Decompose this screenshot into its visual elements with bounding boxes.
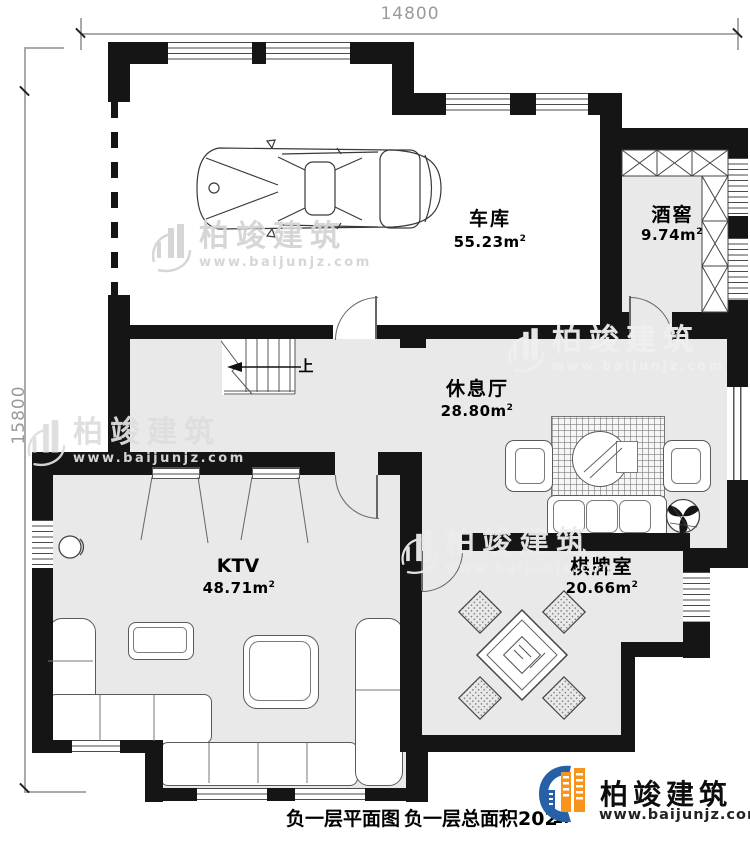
- wall-segment: [108, 325, 333, 339]
- wall-segment: [462, 533, 690, 551]
- window: [446, 93, 510, 115]
- projector-screen: [152, 467, 200, 479]
- wall-segment: [621, 642, 635, 742]
- wall-segment: [365, 788, 428, 801]
- top-dimension-line: [80, 33, 737, 35]
- wall-segment: [267, 788, 295, 801]
- floor-plan: 14800 15800: [0, 0, 750, 845]
- wall-segment: [400, 452, 422, 752]
- watermark: 柏竣建筑www.baijunjz.com: [148, 222, 372, 274]
- left-dimension-line: [24, 47, 26, 792]
- wall-segment: [377, 325, 602, 339]
- wall-pier: [400, 339, 426, 348]
- dimension-extension: [24, 47, 64, 49]
- wall-segment: [108, 295, 130, 455]
- ktv-sofa-right-arm: [355, 618, 403, 786]
- ktv-table-top: [133, 627, 187, 653]
- left-dimension-label: 15800: [9, 360, 29, 470]
- sofa-seat: [553, 500, 585, 533]
- window: [197, 788, 267, 801]
- room-label-ktv: KTV: [198, 556, 278, 577]
- stairs-up-label: 上: [296, 358, 316, 375]
- top-dimension-label: 14800: [340, 4, 480, 24]
- room-area-chess: 20.66m2: [563, 580, 641, 597]
- room-area-lounge: 28.80m2: [428, 403, 526, 420]
- armchair-cushion: [671, 448, 701, 484]
- brand-url: www.baijunjz.com: [599, 807, 750, 823]
- room-area-cellar: 9.74m2: [628, 227, 716, 244]
- chess-room-floor: [422, 643, 635, 736]
- wall-segment: [145, 740, 163, 802]
- armchair-cushion: [515, 448, 545, 484]
- window: [727, 238, 748, 300]
- chess-room-floor: [422, 551, 683, 643]
- plan-title: 负一层平面图: [286, 804, 400, 831]
- room-label-chess: 棋牌室: [564, 557, 640, 578]
- window: [727, 387, 748, 480]
- doorway-floor: [422, 533, 462, 551]
- wall-segment: [32, 452, 53, 753]
- sofa-seat: [586, 500, 618, 533]
- window: [727, 158, 748, 216]
- window: [683, 572, 710, 622]
- car-icon: [197, 140, 441, 237]
- room-label-garage: 车库: [440, 209, 540, 230]
- wall-segment: [400, 735, 635, 752]
- side-table: [616, 441, 638, 473]
- window: [536, 93, 588, 115]
- room-area-garage: 55.23m2: [435, 234, 545, 251]
- watermark-logo-icon: [148, 222, 192, 274]
- wall-segment: [378, 452, 422, 475]
- wall-segment: [108, 42, 414, 64]
- wall-segment: [672, 312, 727, 339]
- window: [266, 42, 350, 64]
- door-arc: [335, 297, 378, 340]
- window: [295, 788, 365, 801]
- window: [72, 740, 120, 753]
- ktv-sofa-bottom-row: [160, 742, 358, 786]
- room-area-ktv: 48.71m2: [193, 580, 285, 597]
- dimension-extension: [24, 791, 86, 793]
- sofa-seat: [619, 500, 651, 533]
- ktv-sofa-bottom-row: [48, 694, 212, 744]
- window: [168, 42, 252, 64]
- wall-segment: [108, 42, 130, 102]
- garage-opening-dashed-line: [111, 102, 118, 295]
- room-label-cellar: 酒窖: [630, 205, 715, 226]
- brand-logo-icon: [535, 762, 599, 834]
- room-label-lounge: 休息厅: [430, 379, 525, 400]
- stair-area: [222, 339, 295, 395]
- wall-segment: [600, 93, 622, 339]
- projector-screen: [252, 467, 300, 479]
- ktv-table-top: [249, 641, 311, 701]
- doorway-floor: [335, 452, 378, 475]
- window: [32, 520, 53, 568]
